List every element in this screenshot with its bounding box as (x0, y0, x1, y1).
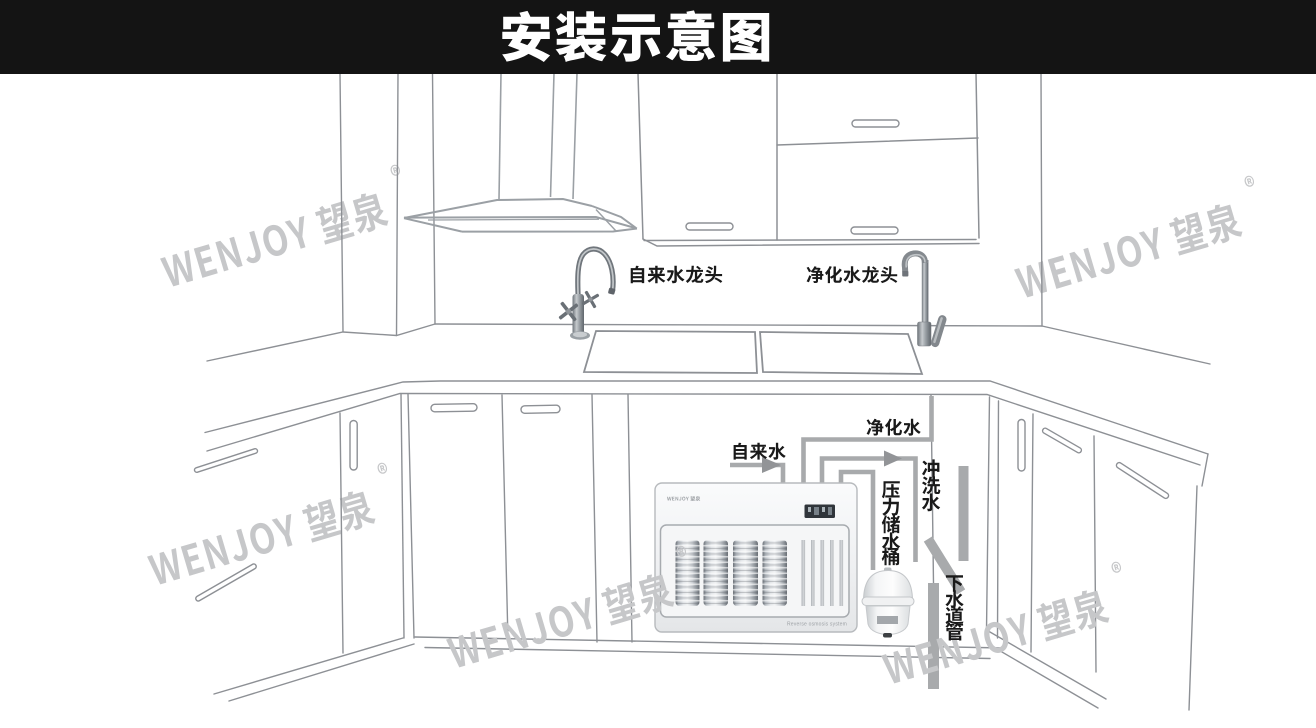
svg-text:Reverse osmosis system: Reverse osmosis system (787, 622, 847, 628)
